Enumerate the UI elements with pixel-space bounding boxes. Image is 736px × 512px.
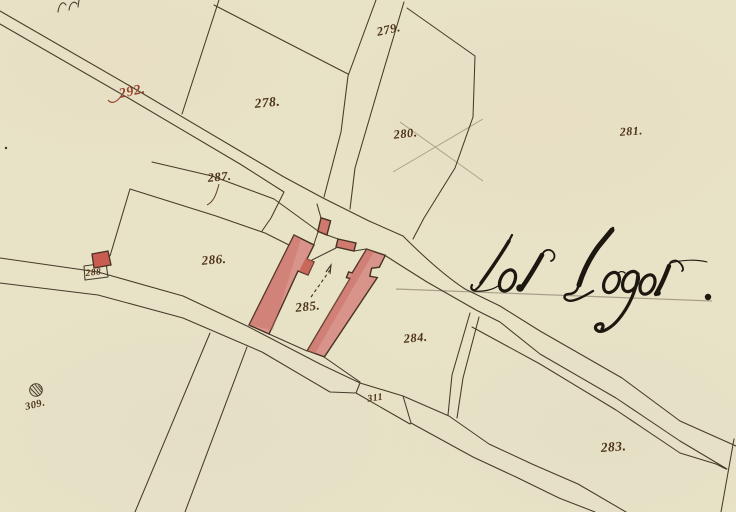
- svg-text:288: 288: [84, 267, 102, 279]
- svg-text:286.: 286.: [200, 251, 227, 268]
- svg-text:278.: 278.: [253, 94, 281, 111]
- svg-text:285.: 285.: [294, 297, 321, 315]
- svg-text:311: 311: [366, 392, 384, 405]
- svg-text:287.: 287.: [206, 169, 232, 185]
- svg-text:281.: 281.: [618, 123, 643, 139]
- svg-text:280.: 280.: [392, 125, 418, 142]
- svg-text:284.: 284.: [402, 330, 428, 346]
- svg-text:283.: 283.: [599, 438, 627, 455]
